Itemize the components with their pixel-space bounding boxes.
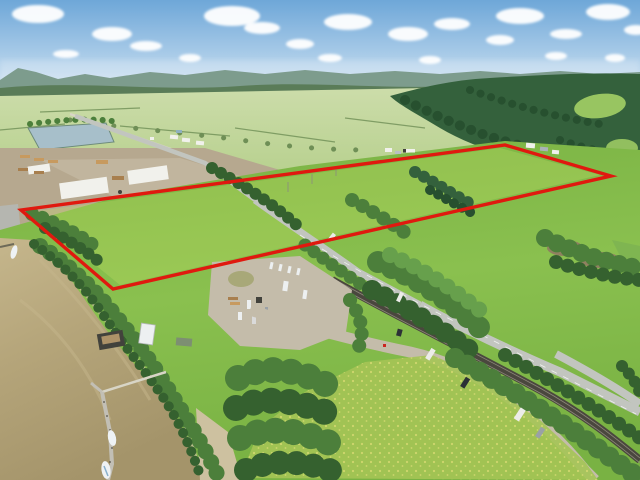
aerial-photo-canvas: [0, 0, 640, 480]
red-bin: [383, 344, 386, 347]
aerial-photo: [0, 0, 640, 480]
shore-rv: [139, 323, 156, 345]
green-roof-trailer: [176, 337, 193, 346]
